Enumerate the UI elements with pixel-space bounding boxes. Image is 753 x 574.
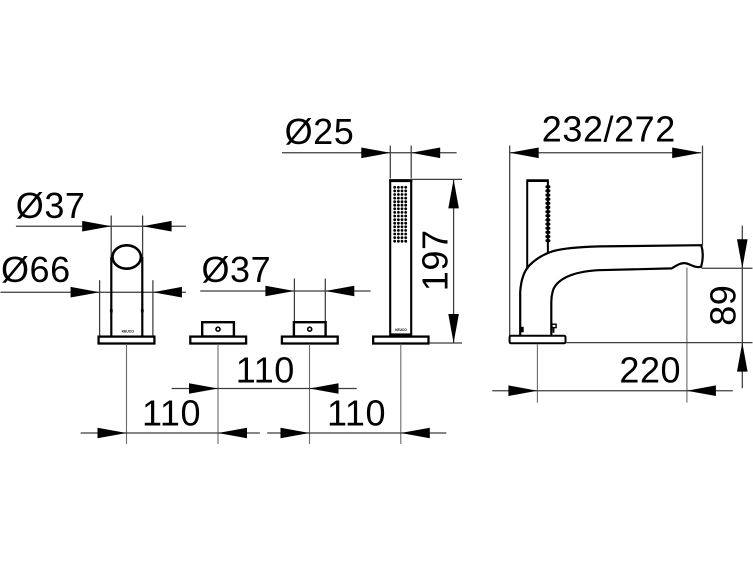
svg-text:232/272: 232/272 [542, 109, 676, 150]
svg-text:KEUCO: KEUCO [395, 328, 407, 332]
svg-text:110: 110 [142, 392, 201, 433]
svg-text:KEUCO: KEUCO [122, 330, 135, 334]
svg-text:89: 89 [702, 285, 743, 326]
svg-text:197: 197 [414, 229, 455, 291]
svg-text:110: 110 [327, 392, 386, 433]
svg-text:Ø25: Ø25 [285, 111, 355, 152]
svg-text:220: 220 [619, 349, 681, 390]
svg-text:Ø37: Ø37 [202, 249, 272, 290]
svg-text:Ø66: Ø66 [1, 249, 71, 290]
svg-text:Ø37: Ø37 [16, 185, 86, 226]
svg-text:110: 110 [236, 349, 295, 390]
